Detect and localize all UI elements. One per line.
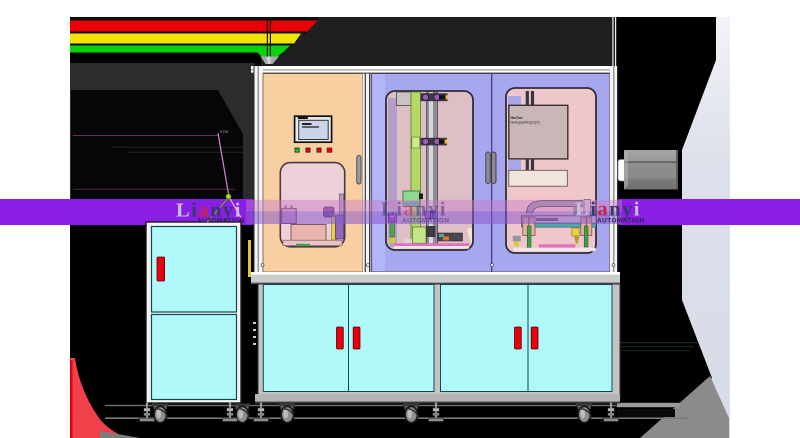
svg-text:AUTOMATION: AUTOMATION bbox=[197, 218, 244, 225]
svg-text:AUTOMATION: AUTOMATION bbox=[402, 218, 449, 225]
svg-text:HiuTon: HiuTon bbox=[511, 116, 523, 120]
svg-text:AUTOMATION: AUTOMATION bbox=[597, 218, 644, 225]
svg-text:57W: 57W bbox=[220, 129, 228, 134]
svg-text:beAcpaZHrqcC[X]: beAcpaZHrqcC[X] bbox=[511, 121, 540, 125]
